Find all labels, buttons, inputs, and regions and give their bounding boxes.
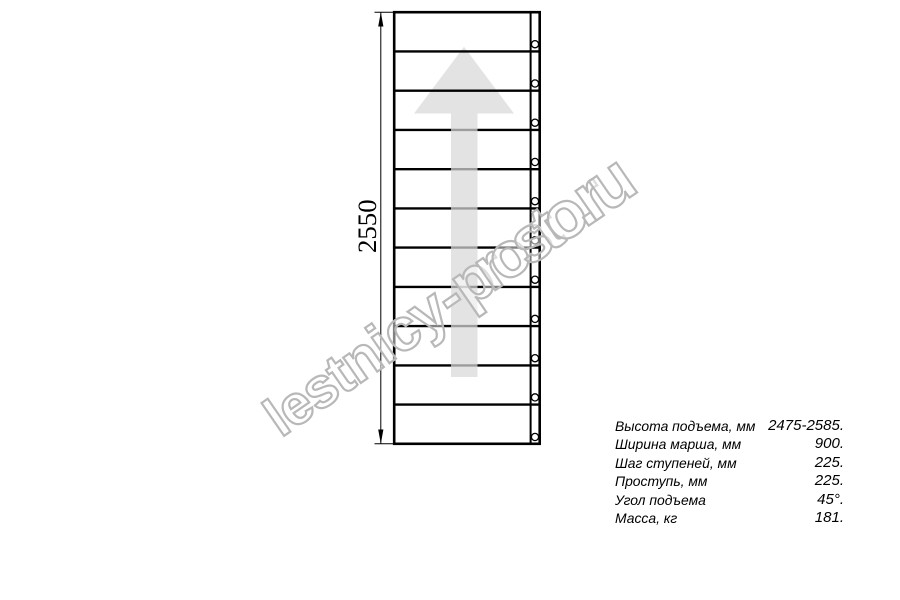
svg-text:2550: 2550 [352,199,382,253]
